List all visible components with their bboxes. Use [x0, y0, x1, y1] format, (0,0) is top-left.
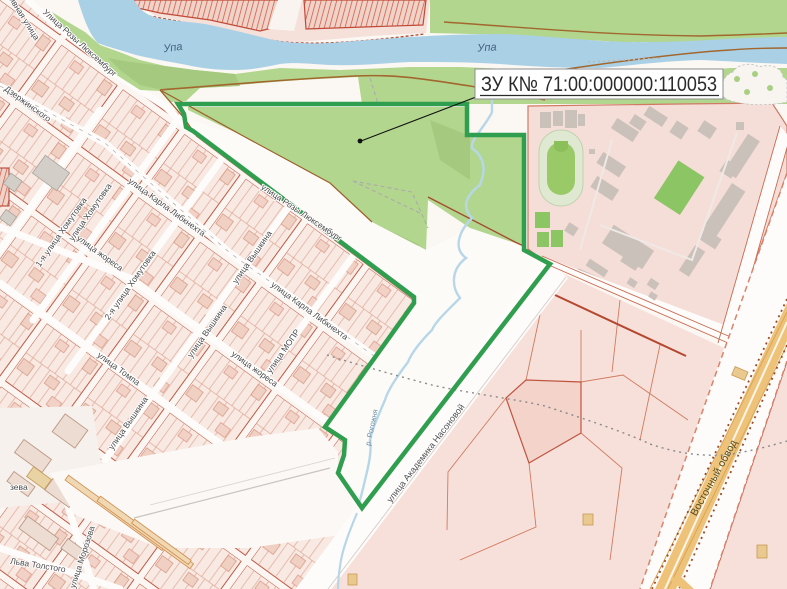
svg-text:ЗУ К№ 71:00:000000:110053: ЗУ К№ 71:00:000000:110053: [481, 73, 717, 96]
svg-text:Упа: Упа: [476, 41, 497, 54]
svg-text:зева: зева: [10, 482, 28, 492]
